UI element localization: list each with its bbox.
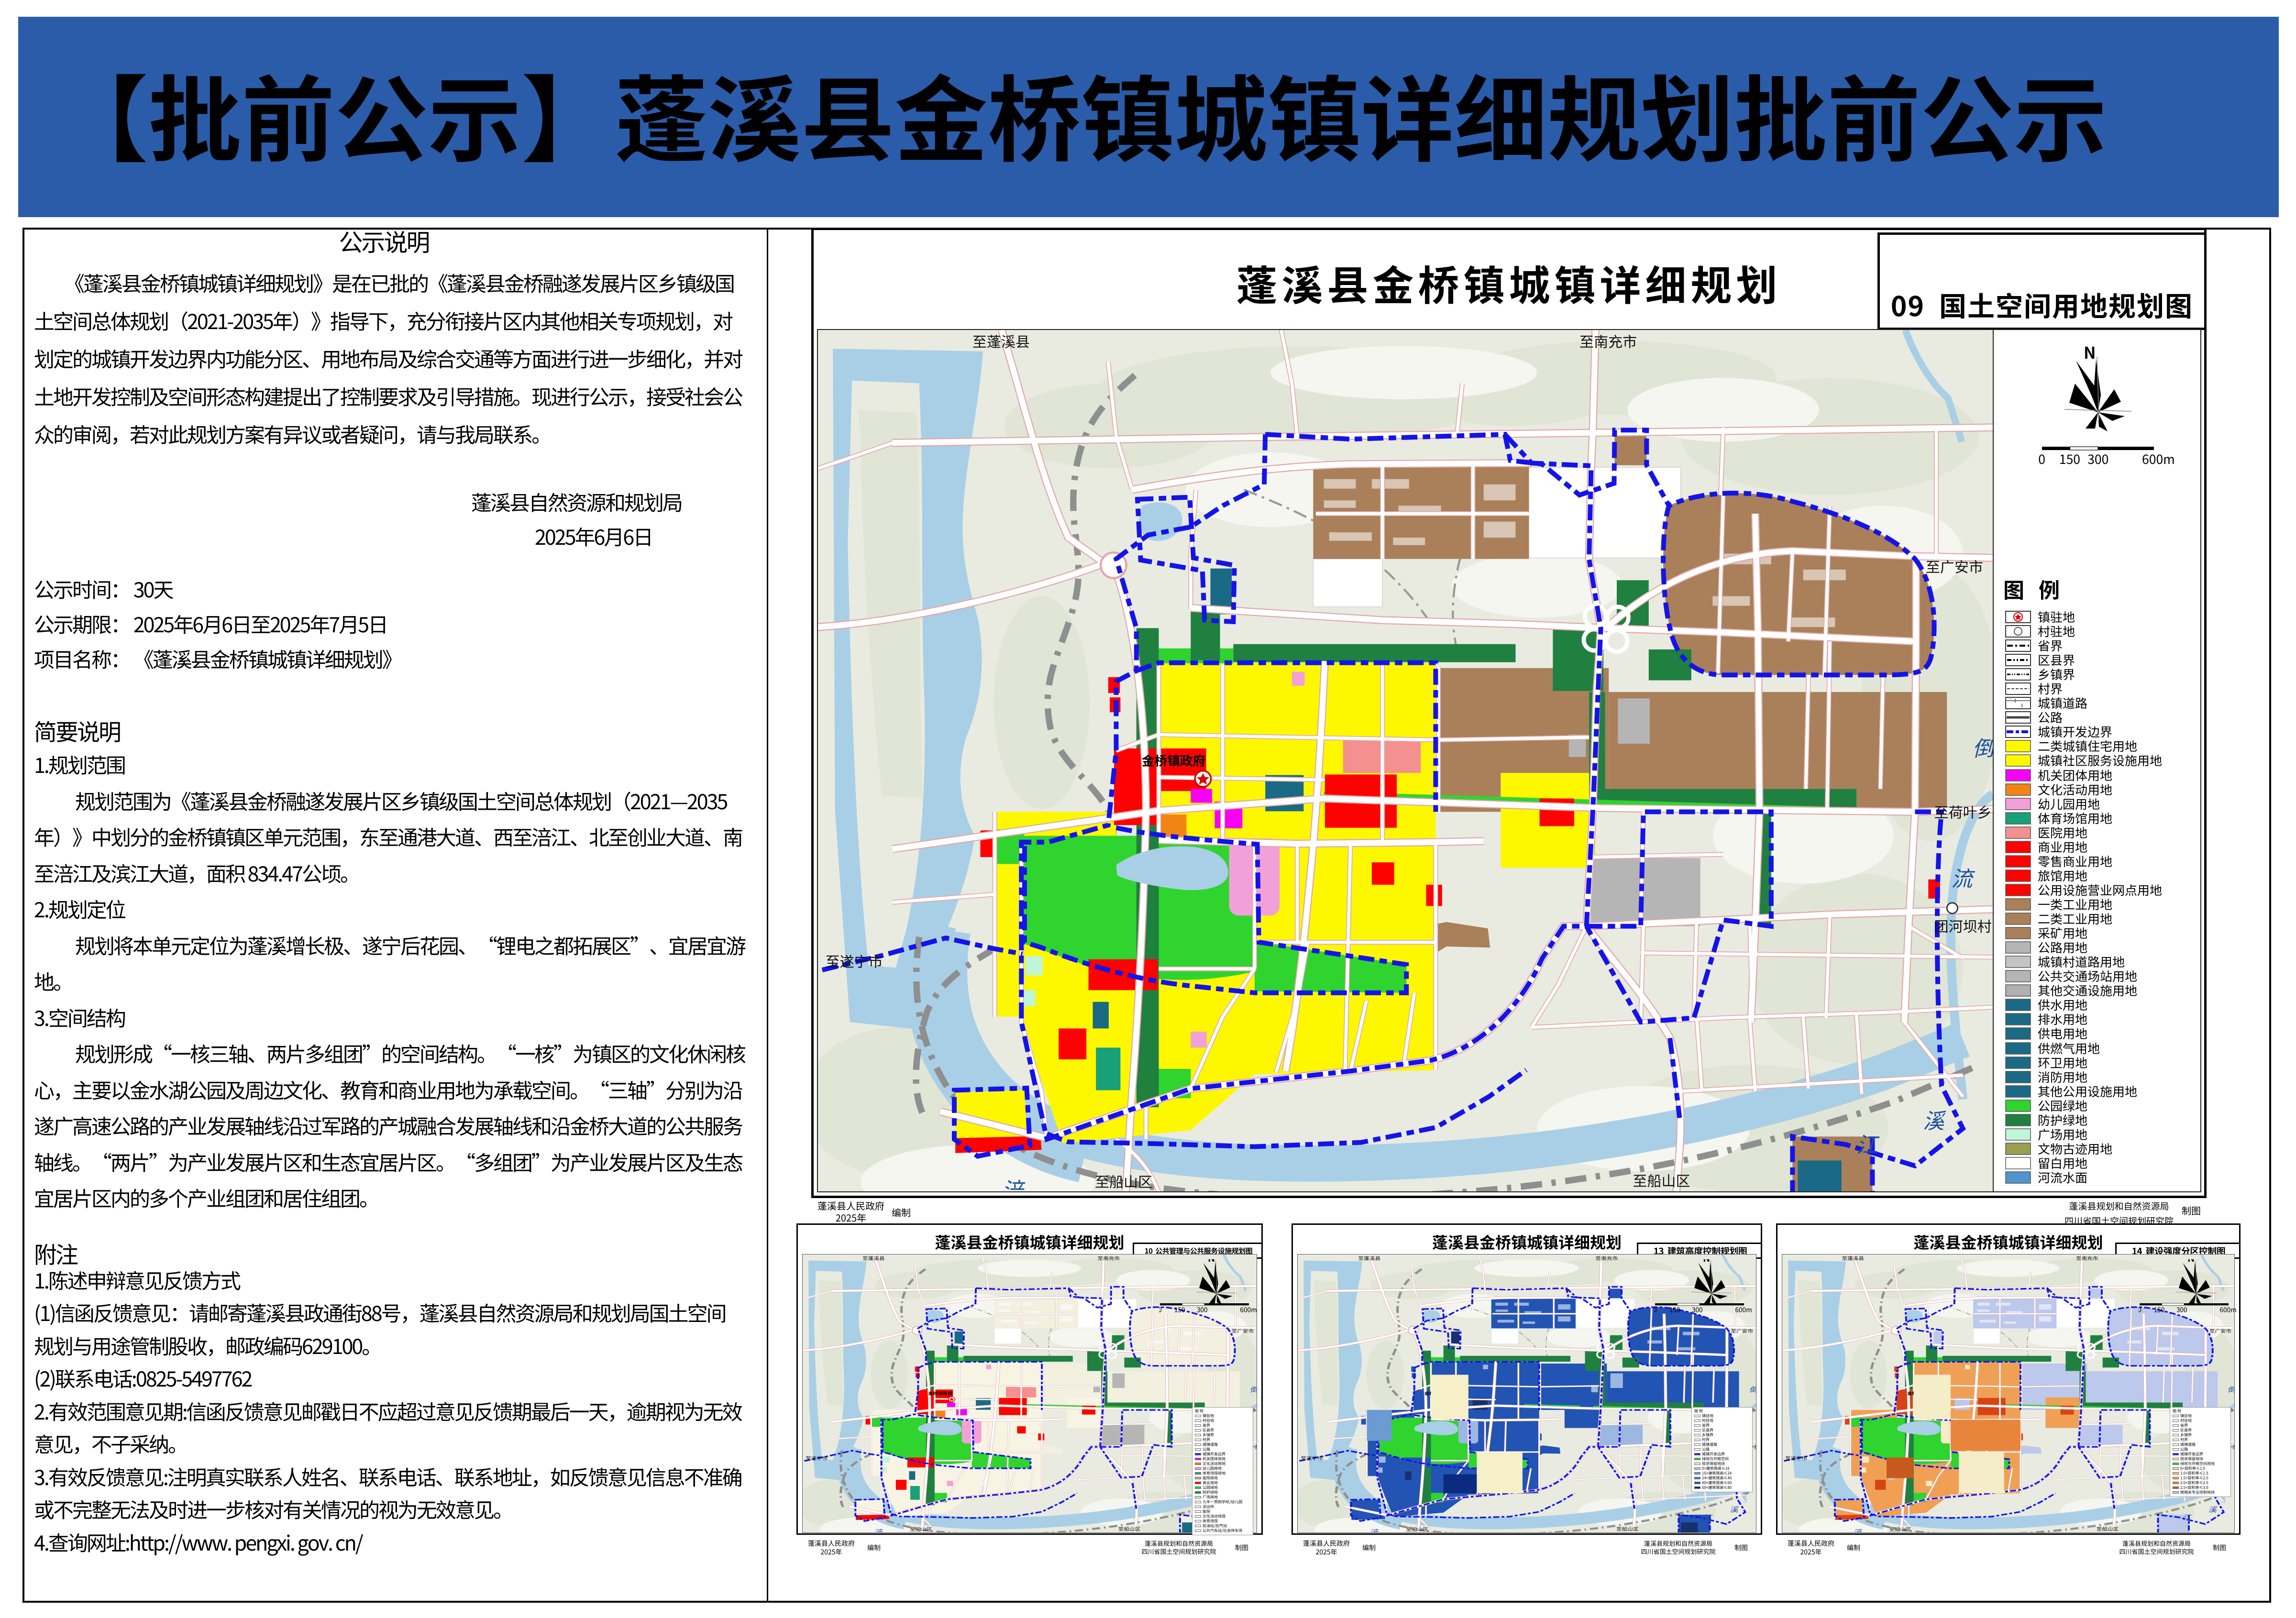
svg-text:150: 150 [1669,1305,1680,1314]
svg-text:300: 300 [2087,449,2108,468]
svg-text:300: 300 [1197,1305,1208,1314]
svg-text:300: 300 [2176,1305,2187,1314]
svg-text:150: 150 [1174,1305,1185,1314]
svg-text:图 例: 图 例 [2003,573,2064,604]
svg-text:0: 0 [1654,1305,1657,1314]
svg-text:0: 0 [2139,1305,2141,1314]
svg-text:600m: 600m [1240,1305,1257,1314]
svg-text:0: 0 [1159,1305,1162,1314]
svg-text:河流水面: 河流水面 [2038,1168,2087,1186]
svg-text:300: 300 [1692,1305,1703,1314]
svg-text:600m: 600m [2219,1305,2236,1314]
svg-text:600m: 600m [2142,449,2175,468]
svg-text:N: N [2084,340,2096,363]
svg-text:150: 150 [2154,1305,2165,1314]
svg-text:N: N [1208,1259,1215,1265]
svg-text:N: N [2187,1259,2195,1265]
svg-text:0: 0 [2038,449,2045,468]
svg-text:600m: 600m [1735,1305,1752,1314]
svg-text:150: 150 [2059,449,2080,468]
svg-text:N: N [1703,1259,1710,1265]
